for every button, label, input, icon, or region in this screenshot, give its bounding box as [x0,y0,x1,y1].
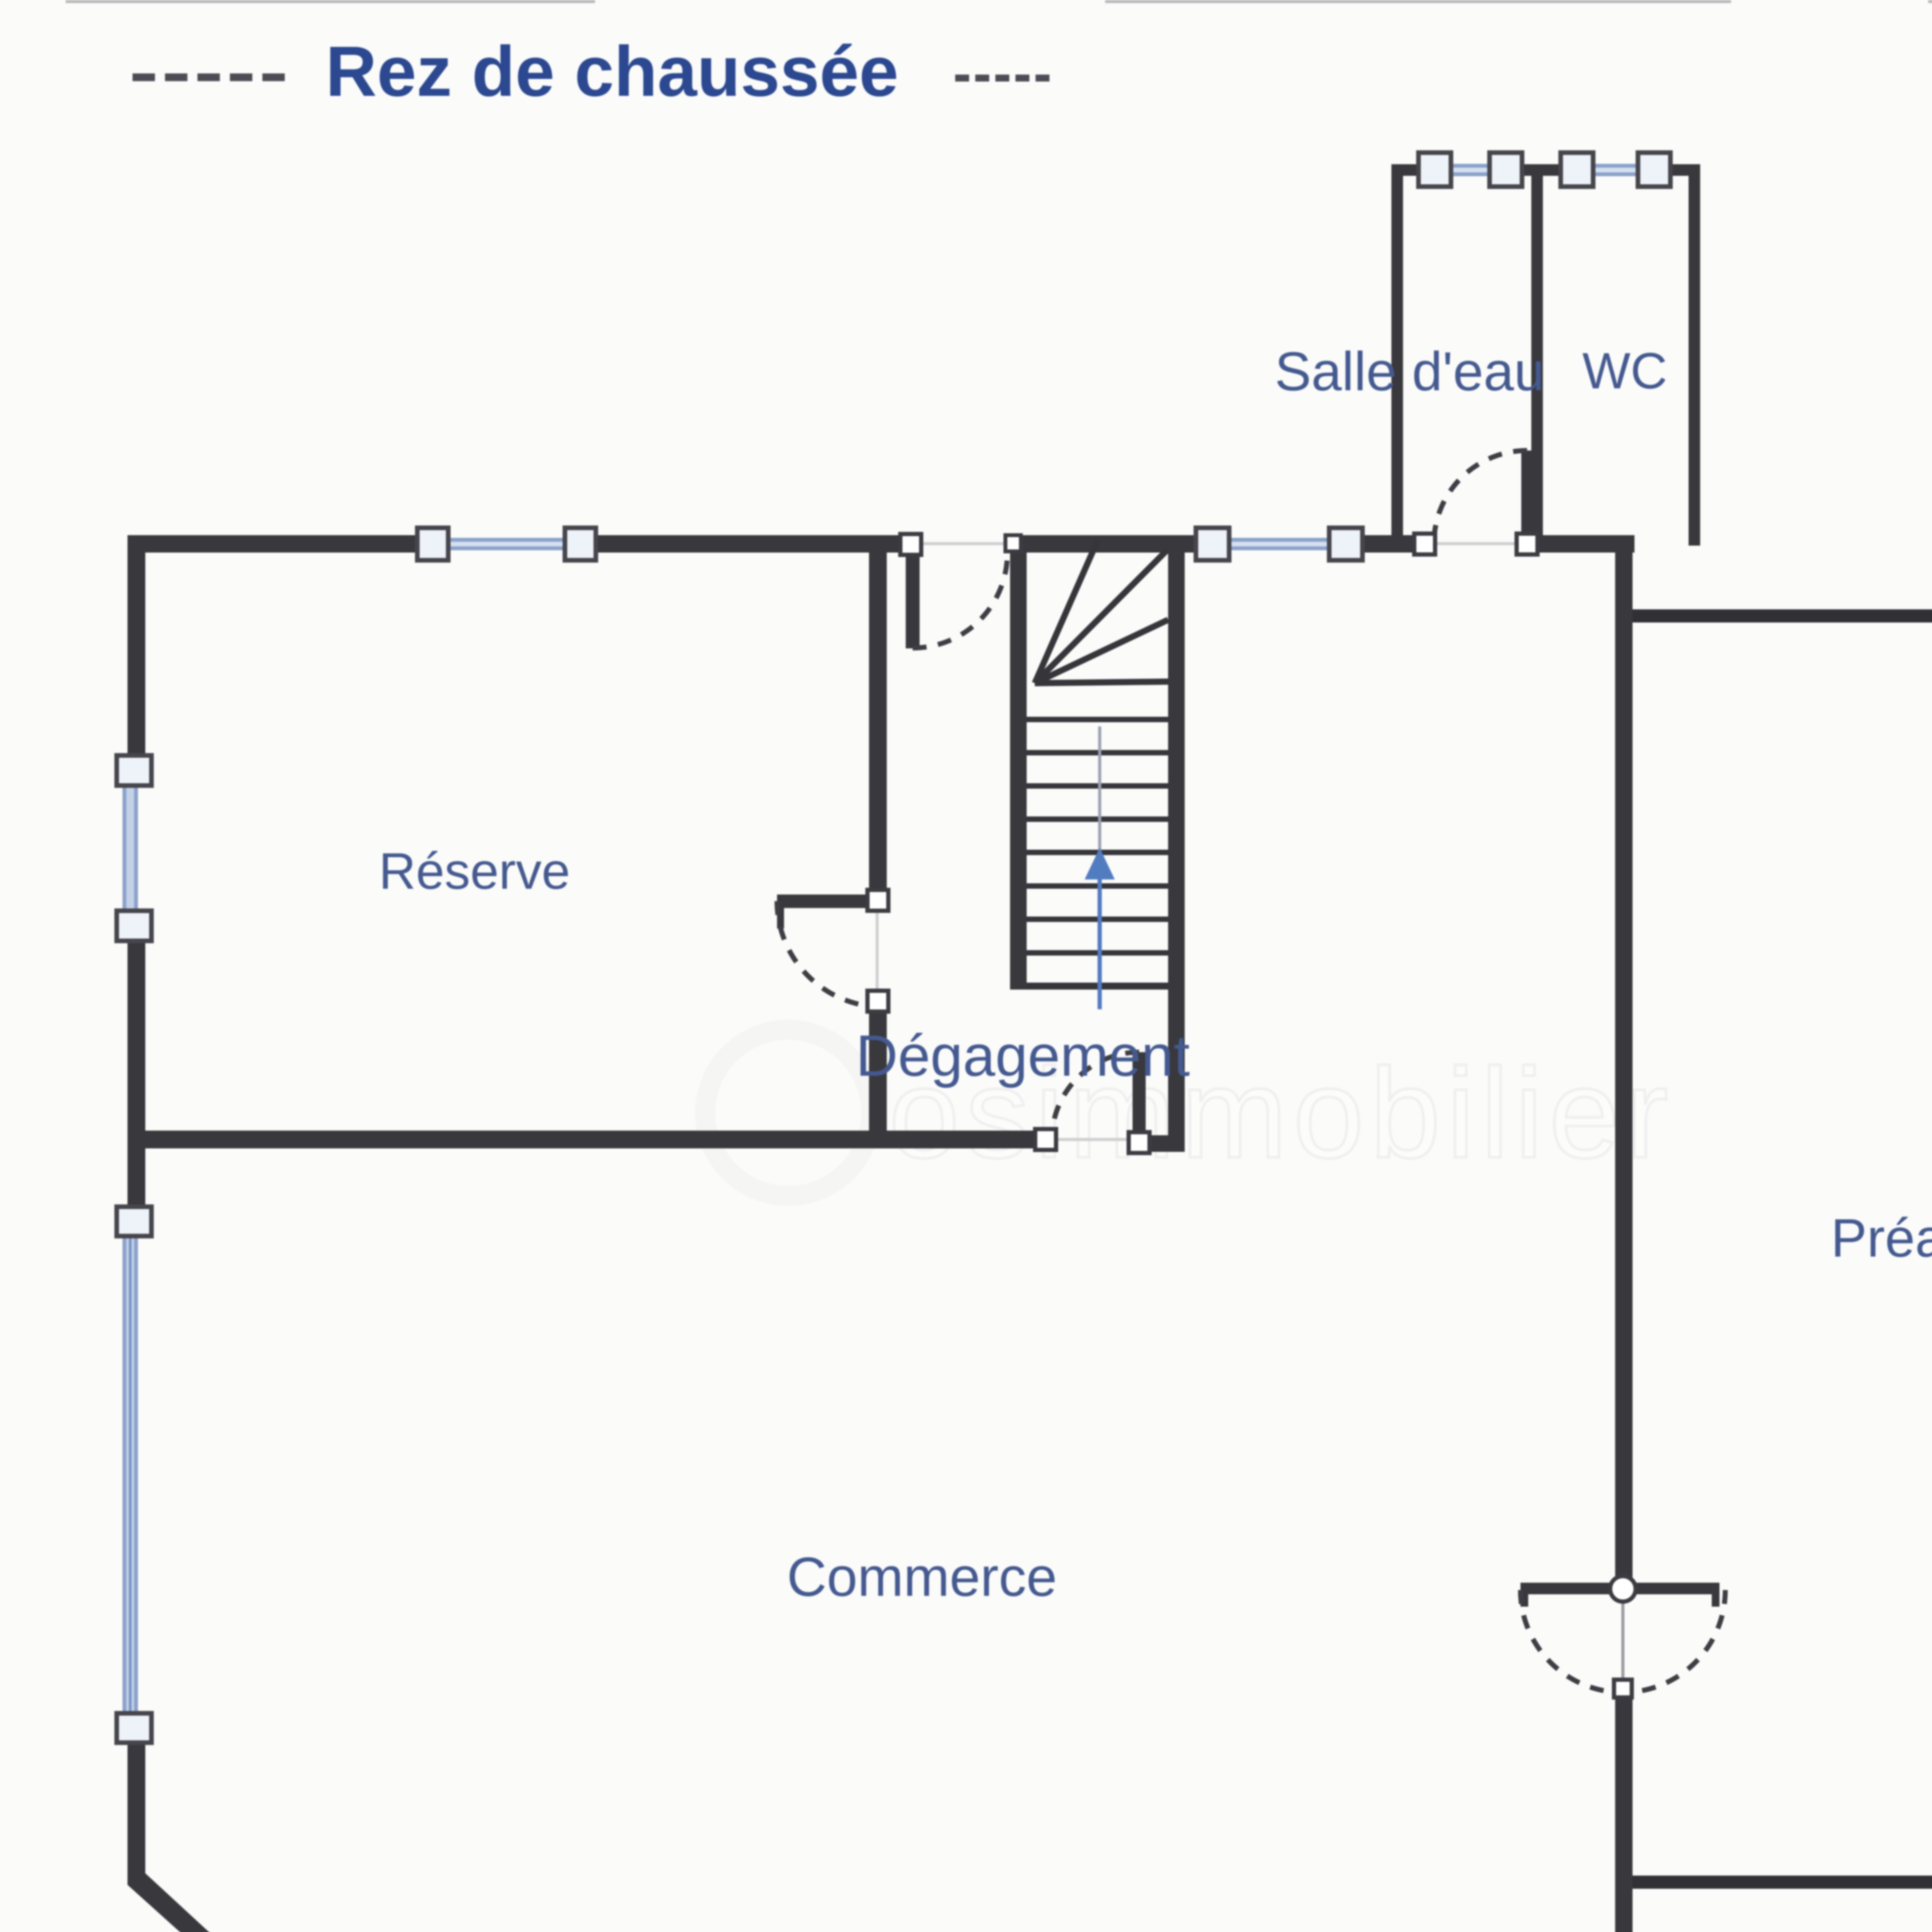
svg-text:Rez de chaussée: Rez de chaussée [326,31,899,111]
svg-text:Préau: Préau [1831,1207,1932,1268]
svg-text:Salle d'eau: Salle d'eau [1275,341,1544,402]
svg-text:Réserve: Réserve [379,843,570,900]
svg-text:WC: WC [1582,342,1667,399]
svg-text:Dégagement: Dégagement [856,1023,1190,1088]
svg-text:Commerce: Commerce [787,1546,1057,1608]
